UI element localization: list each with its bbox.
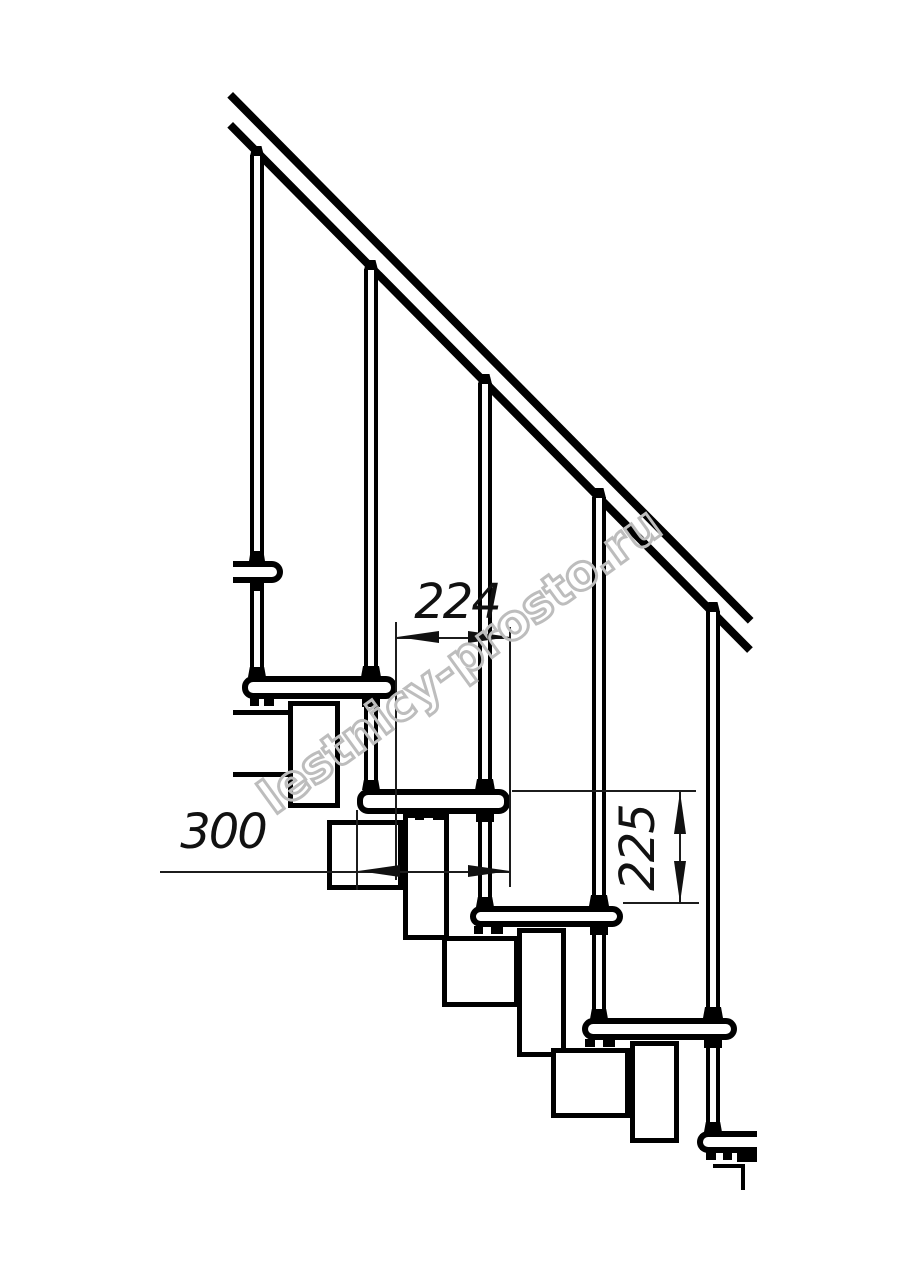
baluster-pass-collar	[475, 779, 495, 790]
module-joint	[264, 698, 274, 706]
module-joint	[415, 812, 424, 820]
module-box	[517, 928, 566, 1057]
module-box	[442, 936, 519, 1007]
module-joint	[585, 1039, 595, 1047]
module-joint	[723, 1152, 732, 1160]
extension-line	[512, 790, 696, 792]
arrowhead-down-icon	[674, 861, 686, 903]
extension-line	[356, 810, 358, 890]
module-joint	[433, 812, 444, 820]
baluster-base-collar	[704, 1122, 722, 1132]
dimension-label-225: 225	[614, 796, 666, 900]
arrowhead-up-icon	[674, 792, 686, 834]
module-box	[403, 813, 449, 940]
module-box	[327, 820, 403, 890]
extension-line	[623, 902, 699, 904]
baluster-sleeve	[704, 1040, 722, 1048]
baluster-base-collar	[476, 897, 494, 907]
baluster	[250, 155, 264, 676]
module-corner-cut	[737, 1150, 757, 1162]
baluster-sleeve	[590, 927, 608, 935]
baluster-sleeve	[476, 814, 494, 822]
module-joint	[250, 698, 259, 706]
staircase-drawing-canvas: 224 300 225 lestnicy-prosto.ru	[0, 0, 914, 1280]
cut-line	[741, 1164, 745, 1190]
dimension-line-300	[160, 871, 510, 873]
tread	[357, 789, 510, 814]
module-joint	[603, 1039, 615, 1047]
module-joint	[474, 926, 483, 934]
baluster-base-collar	[248, 667, 266, 677]
module-joint	[706, 1152, 716, 1160]
module-box	[551, 1048, 630, 1118]
tread	[470, 906, 623, 927]
baluster	[706, 611, 720, 1131]
baluster-base-collar	[590, 1009, 608, 1019]
module-joint	[491, 926, 503, 934]
tread-fragment	[233, 561, 283, 583]
baluster-pass-collar	[703, 1007, 723, 1018]
arrowhead-left-icon	[358, 865, 400, 877]
baluster-pass-collar	[249, 551, 265, 561]
baluster-sleeve	[250, 583, 264, 591]
baluster-pass-collar	[589, 895, 609, 906]
tread	[582, 1018, 737, 1040]
module-box	[630, 1041, 679, 1143]
arrowhead-right-icon	[468, 865, 510, 877]
